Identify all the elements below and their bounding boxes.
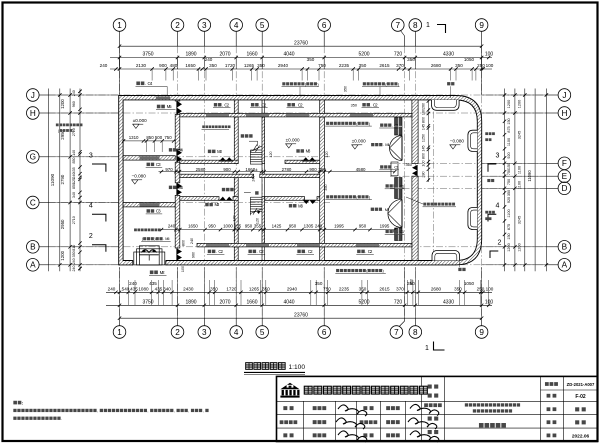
svg-text:500: 500 <box>155 135 163 140</box>
svg-text:1200: 1200 <box>507 243 511 251</box>
svg-text:3: 3 <box>202 328 207 337</box>
svg-text:4: 4 <box>234 21 239 30</box>
svg-text:340: 340 <box>72 192 76 198</box>
svg-text:240: 240 <box>72 258 76 264</box>
svg-text:−0.080: −0.080 <box>450 139 465 144</box>
svg-text:350: 350 <box>262 286 270 291</box>
svg-text:1050: 1050 <box>464 57 475 62</box>
svg-text:100: 100 <box>422 160 426 166</box>
svg-text:1425: 1425 <box>272 224 282 229</box>
svg-text:7: 7 <box>394 328 399 337</box>
svg-text:900: 900 <box>159 63 167 68</box>
svg-text:J: J <box>31 91 35 100</box>
svg-text:3245: 3245 <box>518 131 522 139</box>
svg-text:1660: 1660 <box>246 52 257 58</box>
svg-text:,: , <box>97 408 98 413</box>
svg-text:1: 1 <box>117 328 122 337</box>
svg-text:120: 120 <box>325 151 329 157</box>
svg-text:150: 150 <box>507 163 511 169</box>
svg-text:960: 960 <box>72 101 76 107</box>
svg-text:2235: 2235 <box>339 286 350 291</box>
svg-text:240: 240 <box>205 57 213 62</box>
svg-text:350: 350 <box>407 57 415 62</box>
svg-text:1650: 1650 <box>185 63 196 68</box>
svg-text:140: 140 <box>72 150 76 156</box>
svg-text:2430: 2430 <box>183 286 194 291</box>
svg-text:.: . <box>257 249 258 254</box>
svg-text:370: 370 <box>396 286 404 291</box>
svg-text:3245: 3245 <box>518 216 522 224</box>
svg-text:.: . <box>222 102 223 107</box>
svg-text:1200: 1200 <box>518 100 522 108</box>
svg-text:240: 240 <box>72 266 76 272</box>
svg-text:750: 750 <box>507 179 511 185</box>
svg-text:100: 100 <box>486 286 494 291</box>
svg-text:±0.000: ±0.000 <box>133 118 147 123</box>
svg-text:8: 8 <box>413 21 418 30</box>
svg-text:750: 750 <box>164 135 172 140</box>
svg-text:1080: 1080 <box>138 286 149 291</box>
svg-text:1660±: 1660± <box>245 167 258 172</box>
svg-text:4: 4 <box>89 203 93 210</box>
svg-text:350: 350 <box>410 279 414 285</box>
svg-text:.: . <box>392 165 393 170</box>
svg-text:,: , <box>174 408 175 413</box>
svg-text:23760: 23760 <box>294 40 308 46</box>
svg-text:6: 6 <box>322 328 327 337</box>
svg-text:720: 720 <box>394 300 403 306</box>
svg-text:B: B <box>30 243 36 252</box>
svg-text:850: 850 <box>72 158 76 164</box>
svg-text:370: 370 <box>396 63 404 68</box>
svg-text:3: 3 <box>202 21 207 30</box>
svg-text:7: 7 <box>396 21 401 30</box>
svg-text:11090: 11090 <box>527 170 532 182</box>
svg-text:875: 875 <box>507 126 511 132</box>
svg-text:4: 4 <box>496 203 500 210</box>
svg-text:2940: 2940 <box>278 63 289 68</box>
svg-text:240: 240 <box>168 224 176 229</box>
svg-text:1100: 1100 <box>507 138 511 146</box>
svg-text:240: 240 <box>251 176 255 182</box>
svg-text:1995: 1995 <box>380 224 390 229</box>
svg-text:350: 350 <box>324 184 328 190</box>
svg-text:950: 950 <box>208 224 216 229</box>
svg-text:±0.000: ±0.000 <box>286 138 300 143</box>
svg-text:2130: 2130 <box>136 63 147 68</box>
svg-text:.: . <box>365 249 366 254</box>
svg-text:2070: 2070 <box>219 300 230 306</box>
svg-text:D: D <box>561 184 567 193</box>
svg-text:5: 5 <box>260 21 265 30</box>
svg-text:3: 3 <box>496 152 500 159</box>
svg-text:6: 6 <box>322 21 327 30</box>
svg-text:800: 800 <box>422 153 426 159</box>
svg-text:.: . <box>259 102 260 107</box>
svg-text:1720: 1720 <box>226 286 237 291</box>
svg-text:1265: 1265 <box>244 63 255 68</box>
svg-text:350: 350 <box>359 63 367 68</box>
svg-text:): ) <box>73 129 74 133</box>
svg-text:150: 150 <box>507 118 511 124</box>
svg-text:280: 280 <box>422 171 426 177</box>
svg-text:1200: 1200 <box>60 99 65 109</box>
svg-text:100: 100 <box>485 52 494 58</box>
svg-text:350: 350 <box>209 63 217 68</box>
svg-text:900: 900 <box>309 167 317 172</box>
svg-text:.: . <box>295 102 296 107</box>
svg-text:A: A <box>562 261 568 270</box>
svg-text:±0.000: ±0.000 <box>352 139 366 144</box>
svg-text:1890: 1890 <box>185 52 196 58</box>
svg-text:480: 480 <box>170 63 178 68</box>
svg-text:900: 900 <box>223 167 231 172</box>
svg-text:2: 2 <box>498 240 502 247</box>
svg-text:1720: 1720 <box>225 63 236 68</box>
svg-text:350: 350 <box>307 57 315 62</box>
svg-text:350: 350 <box>455 63 463 68</box>
svg-text:9: 9 <box>479 328 484 337</box>
svg-text:350: 350 <box>210 286 218 291</box>
svg-text:100: 100 <box>486 63 494 68</box>
svg-text:240: 240 <box>72 173 76 179</box>
svg-text:2680: 2680 <box>431 63 442 68</box>
svg-text:2940: 2940 <box>287 286 298 291</box>
svg-text:4040: 4040 <box>283 52 294 58</box>
svg-text:.: . <box>145 81 146 86</box>
svg-text:3750: 3750 <box>142 300 153 306</box>
svg-text:360: 360 <box>318 167 326 172</box>
svg-text:240: 240 <box>129 281 137 286</box>
svg-text:1200: 1200 <box>60 250 65 260</box>
svg-text:.: . <box>383 142 384 147</box>
svg-text:920: 920 <box>507 152 511 158</box>
svg-text:2615: 2615 <box>379 286 390 291</box>
svg-text:11090: 11090 <box>50 173 55 186</box>
svg-text:240: 240 <box>72 90 76 96</box>
svg-text:355: 355 <box>234 224 242 229</box>
svg-text:1310: 1310 <box>129 135 139 140</box>
svg-text:.: . <box>216 249 217 254</box>
svg-text:750: 750 <box>507 169 511 175</box>
svg-text:350: 350 <box>344 86 348 92</box>
svg-text:,: , <box>147 408 148 413</box>
svg-text:H: H <box>561 109 567 118</box>
svg-text:E: E <box>562 172 568 181</box>
svg-text:240: 240 <box>100 63 108 68</box>
svg-text:360: 360 <box>406 163 412 167</box>
svg-text:4330: 4330 <box>443 52 454 58</box>
svg-text:1200: 1200 <box>518 243 522 251</box>
svg-text:2950: 2950 <box>60 219 65 229</box>
svg-text:1: 1 <box>425 345 429 352</box>
svg-text:F: F <box>562 159 567 168</box>
svg-text:.: . <box>392 123 393 128</box>
svg-text:.: . <box>61 416 62 421</box>
svg-text:2070: 2070 <box>219 52 230 58</box>
svg-text:350: 350 <box>359 286 367 291</box>
svg-text:810: 810 <box>72 245 76 251</box>
svg-text:150: 150 <box>507 233 511 239</box>
svg-text:120: 120 <box>255 218 259 224</box>
svg-text:2780: 2780 <box>282 167 292 172</box>
svg-text:4580: 4580 <box>356 167 366 172</box>
svg-text:1: 1 <box>117 21 122 30</box>
svg-text:435: 435 <box>149 281 157 286</box>
svg-text:240: 240 <box>315 224 323 229</box>
svg-text:.: . <box>397 229 398 234</box>
svg-text:1: 1 <box>426 22 430 29</box>
svg-text:435: 435 <box>72 167 76 173</box>
svg-text:435: 435 <box>155 286 163 291</box>
svg-text:240: 240 <box>190 238 194 244</box>
svg-text:1660: 1660 <box>246 300 257 306</box>
svg-text:4330: 4330 <box>443 300 454 306</box>
svg-text:435: 435 <box>130 286 138 291</box>
svg-text:.: . <box>305 249 306 254</box>
svg-text:1200: 1200 <box>507 100 511 108</box>
svg-text:260: 260 <box>422 103 426 109</box>
svg-text:5: 5 <box>260 328 265 337</box>
svg-text:750: 750 <box>318 63 326 68</box>
svg-text:−0.080: −0.080 <box>132 174 147 179</box>
svg-text:875: 875 <box>507 224 511 230</box>
svg-text:H: H <box>30 109 36 118</box>
svg-text:1100: 1100 <box>518 166 522 174</box>
svg-text:2680: 2680 <box>431 286 442 291</box>
svg-text:1995: 1995 <box>334 224 344 229</box>
svg-text:540: 540 <box>122 286 130 291</box>
svg-text:350: 350 <box>454 286 462 291</box>
svg-text:J: J <box>562 91 566 100</box>
svg-text:350: 350 <box>507 190 511 196</box>
svg-text:2615: 2615 <box>379 63 390 68</box>
svg-text:145: 145 <box>422 124 426 130</box>
svg-text:800: 800 <box>182 240 186 246</box>
svg-text:2: 2 <box>175 21 180 30</box>
svg-text:.: . <box>370 102 371 107</box>
svg-text:1:100: 1:100 <box>289 364 306 371</box>
svg-text:250: 250 <box>477 63 485 68</box>
svg-text:4: 4 <box>234 328 239 337</box>
svg-text:4040: 4040 <box>283 300 294 306</box>
svg-text:5: 5 <box>167 237 169 241</box>
svg-text:340: 340 <box>163 286 171 291</box>
svg-text:960: 960 <box>192 252 196 258</box>
svg-text:2: 2 <box>175 328 180 337</box>
svg-text:850: 850 <box>72 183 76 189</box>
svg-text:3750: 3750 <box>142 52 153 58</box>
svg-text:350: 350 <box>315 281 323 286</box>
svg-text:C: C <box>30 198 36 207</box>
svg-text:A: A <box>30 261 36 270</box>
svg-text:950: 950 <box>245 224 253 229</box>
svg-text:.: . <box>382 207 383 212</box>
svg-text:100: 100 <box>181 266 185 272</box>
svg-text:120: 120 <box>232 215 236 221</box>
svg-text:1250: 1250 <box>422 134 426 142</box>
svg-text:1305: 1305 <box>304 224 314 229</box>
svg-text:.: . <box>397 184 398 189</box>
svg-text:2022.06: 2022.06 <box>572 433 590 439</box>
svg-text:1890: 1890 <box>185 300 196 306</box>
svg-text:720: 720 <box>394 52 403 58</box>
svg-text:8: 8 <box>413 328 418 337</box>
svg-text:950: 950 <box>289 224 297 229</box>
svg-text:23760: 23760 <box>294 312 308 318</box>
svg-text:B: B <box>562 243 568 252</box>
svg-text:800: 800 <box>422 117 426 123</box>
svg-text:1000: 1000 <box>223 224 233 229</box>
svg-text:100: 100 <box>485 300 494 306</box>
svg-text:970: 970 <box>165 167 173 172</box>
svg-text:1050: 1050 <box>464 281 475 286</box>
svg-text:,: , <box>203 408 204 413</box>
svg-text:350: 350 <box>72 251 76 257</box>
svg-text:2790: 2790 <box>60 174 65 184</box>
svg-text:3: 3 <box>89 152 93 159</box>
svg-text:G: G <box>30 153 36 162</box>
svg-text:850: 850 <box>146 135 154 140</box>
svg-text:2580: 2580 <box>196 167 206 172</box>
svg-text:1100: 1100 <box>507 209 511 217</box>
svg-text:120: 120 <box>269 151 273 157</box>
svg-text:145: 145 <box>422 145 426 151</box>
svg-text:2710: 2710 <box>72 216 76 224</box>
svg-text:F-02: F-02 <box>575 394 586 400</box>
svg-text:920: 920 <box>507 197 511 203</box>
svg-text:2235: 2235 <box>339 63 350 68</box>
svg-text:ZD-2021-A007: ZD-2021-A007 <box>567 382 595 387</box>
svg-text:1650: 1650 <box>188 224 198 229</box>
svg-text:1265: 1265 <box>249 286 260 291</box>
svg-text:2: 2 <box>89 233 93 240</box>
svg-text:1100: 1100 <box>518 181 522 189</box>
svg-text:,: , <box>188 408 189 413</box>
svg-text:350: 350 <box>257 63 265 68</box>
svg-text:950: 950 <box>359 224 367 229</box>
svg-text:5200: 5200 <box>358 300 369 306</box>
svg-text:350: 350 <box>351 103 357 107</box>
svg-text:9: 9 <box>479 21 484 30</box>
svg-text:160: 160 <box>422 109 426 115</box>
svg-text:5200: 5200 <box>358 52 369 58</box>
svg-text:240: 240 <box>108 286 116 291</box>
svg-text:.: . <box>163 237 164 241</box>
